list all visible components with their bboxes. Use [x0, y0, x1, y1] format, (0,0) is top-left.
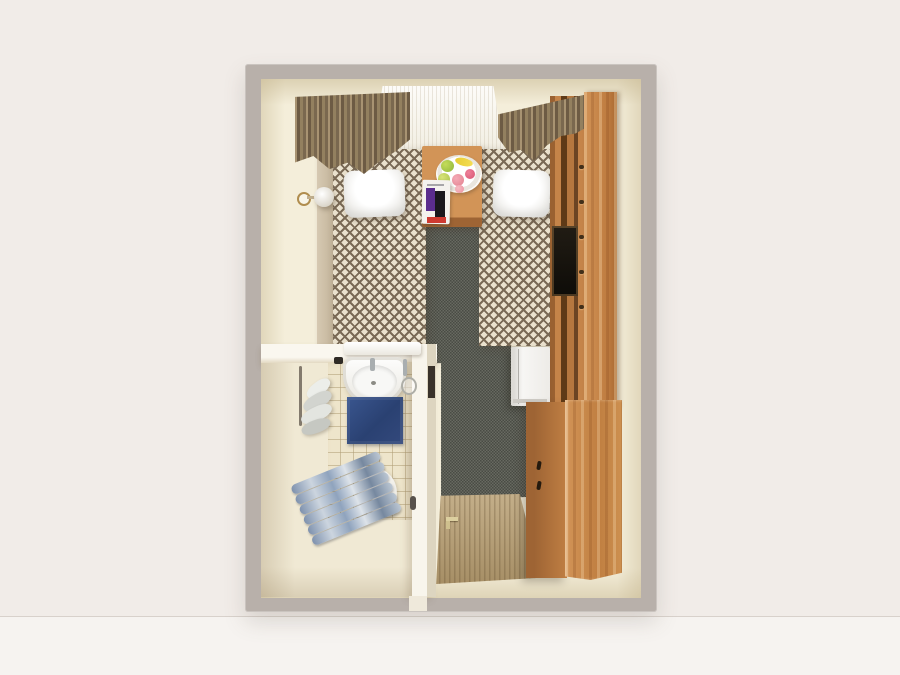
dresser-top [565, 400, 622, 580]
fruit-rose [465, 169, 475, 179]
backdrop-surface [0, 617, 900, 675]
wall-sconce-globe [314, 187, 334, 207]
wardrobe-knob [579, 200, 584, 204]
vanity-ledge [344, 342, 421, 355]
tv-screen [552, 226, 578, 296]
bed-right-pillow [492, 169, 550, 217]
dresser-front [526, 402, 567, 578]
bathroom-door-handle [410, 496, 416, 510]
wardrobe-knob [579, 165, 584, 169]
magazine-block-red [427, 217, 446, 223]
magazine-block-purple [426, 188, 435, 211]
sconce-mount-ring [297, 192, 311, 206]
magazine-block-black [435, 191, 445, 217]
sink-drain [371, 381, 376, 385]
bed-left-pillow [343, 169, 406, 218]
towel-bar [403, 359, 407, 376]
mini-fridge-door-seam [518, 349, 519, 404]
bed-left-rail [317, 147, 334, 350]
room-render-canvas [0, 0, 900, 675]
bath-mat [347, 397, 403, 444]
wall-seam [409, 596, 427, 611]
wall-niche [428, 366, 435, 398]
wardrobe-tall-panel [584, 92, 617, 408]
counter-accessory [334, 357, 343, 364]
faucet [370, 358, 375, 371]
entry-door-handle [446, 521, 450, 529]
mini-fridge [511, 347, 550, 406]
backdrop-seam-line [0, 616, 900, 617]
wardrobe-knob [579, 305, 584, 309]
magnifying-mirror [401, 377, 417, 395]
fruit-blush [455, 185, 464, 193]
wardrobe-knob [579, 270, 584, 274]
wardrobe-knob [579, 235, 584, 239]
fruit-green-apple [441, 160, 454, 172]
magazine-title-line [427, 184, 444, 186]
